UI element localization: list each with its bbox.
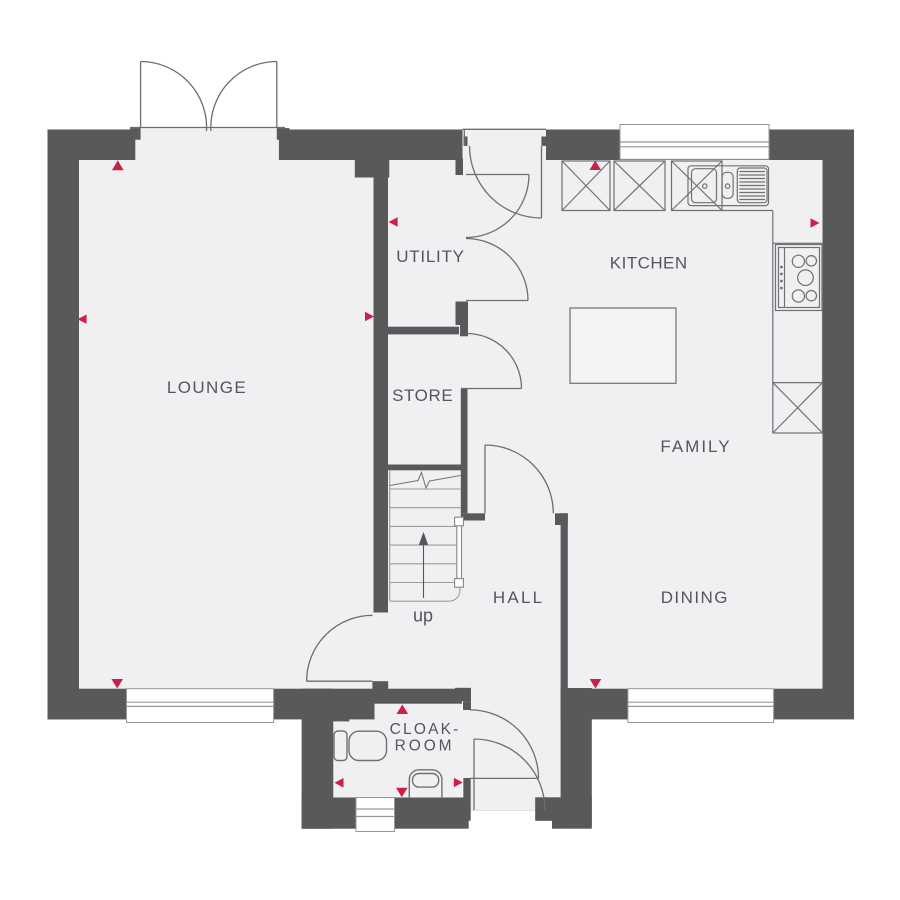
svg-text:HALL: HALL <box>493 588 544 607</box>
svg-text:UTILITY: UTILITY <box>396 247 465 266</box>
svg-text:KITCHEN: KITCHEN <box>610 254 688 273</box>
svg-text:up: up <box>413 606 433 626</box>
svg-text:CLOAK-: CLOAK- <box>390 721 461 738</box>
svg-text:LOUNGE: LOUNGE <box>167 378 247 397</box>
svg-text:STORE: STORE <box>392 386 453 405</box>
svg-text:ROOM: ROOM <box>395 738 455 755</box>
svg-text:DINING: DINING <box>661 588 729 607</box>
svg-text:FAMILY: FAMILY <box>660 437 731 456</box>
